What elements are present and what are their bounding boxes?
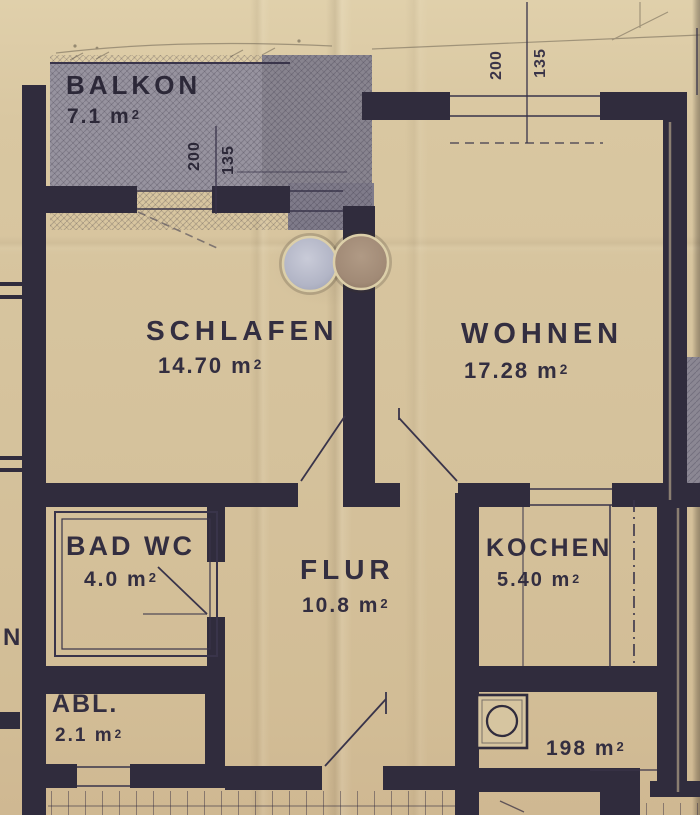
door-swing-schlafen: [301, 416, 345, 481]
wall-wohnen-north-a: [362, 92, 450, 120]
wall-right-upper: [663, 92, 687, 506]
punch-holes: [281, 233, 390, 293]
window-wohnen: [450, 96, 600, 116]
room-label-kochen: KOCHEN: [486, 536, 612, 561]
wall-schlafen-north-b: [212, 186, 290, 213]
room-label-wohnen: WOHNEN: [461, 320, 623, 349]
door-abl: [77, 767, 130, 786]
wall-corner-block: [600, 768, 640, 815]
room-area-flur: 10.8 m2: [302, 595, 390, 616]
punch-hole-right: [334, 235, 388, 289]
room-area-kochen: 5.40 m2: [497, 570, 581, 590]
wall-kochen-bottom: [477, 666, 657, 692]
room-area-wohnen: 17.28 m2: [464, 360, 569, 382]
door-swing-entry: [325, 699, 386, 766]
door-swing-wohnen: [399, 418, 457, 481]
wall-flur-bottom-b: [383, 766, 457, 790]
room-label-bad: BAD WC: [66, 533, 195, 560]
wall-left-outer: [22, 85, 46, 815]
wall-mid-a: [40, 483, 298, 507]
wall-abl-bottom-a: [40, 764, 77, 788]
opening-kochen: [530, 489, 612, 505]
room-area-abl: 2.1 m2: [55, 726, 123, 745]
wall-mid-b: [343, 483, 400, 507]
dim-balcony-200: 200: [187, 141, 203, 171]
washing-machine-icon: [477, 695, 527, 748]
wall-mid-d: [612, 483, 700, 507]
punch-hole-left: [283, 237, 337, 291]
wall-bottom-right-bar: [650, 781, 700, 797]
wall-right-lower: [657, 505, 687, 795]
area-note-198: 198 m2: [546, 738, 626, 759]
dim-balcony-135: 135: [221, 145, 237, 175]
neighbor-label-partial: N: [3, 626, 20, 650]
wall-flur-bottom-a: [225, 766, 322, 790]
room-label-abl: ABL.: [52, 692, 118, 717]
pencil-sketch-lines: [56, 2, 700, 60]
wall-flur-kochen-divider: [455, 493, 479, 815]
dim-top-200: 200: [489, 50, 505, 80]
wall-wash-bottom: [460, 768, 600, 792]
wall-schlafen-north-a: [45, 186, 137, 213]
room-area-bad: 4.0 m2: [84, 569, 158, 590]
door-swings: [143, 408, 457, 766]
room-label-flur: FLUR: [300, 556, 395, 584]
room-label-balkon: BALKON: [66, 72, 201, 98]
wall-abl-bottom-b: [130, 764, 225, 788]
room-area-schlafen: 14.70 m2: [158, 355, 263, 377]
neighbor-balcony-right: [686, 357, 700, 505]
floorplan-scan: BALKON 7.1 m2 SCHLAFEN 14.70 m2 WOHNEN 1…: [0, 0, 700, 815]
room-area-balkon: 7.1 m2: [67, 106, 141, 127]
dim-top-135: 135: [533, 48, 549, 78]
door-swing-bad: [158, 567, 207, 614]
room-label-schlafen: SCHLAFEN: [146, 317, 338, 345]
